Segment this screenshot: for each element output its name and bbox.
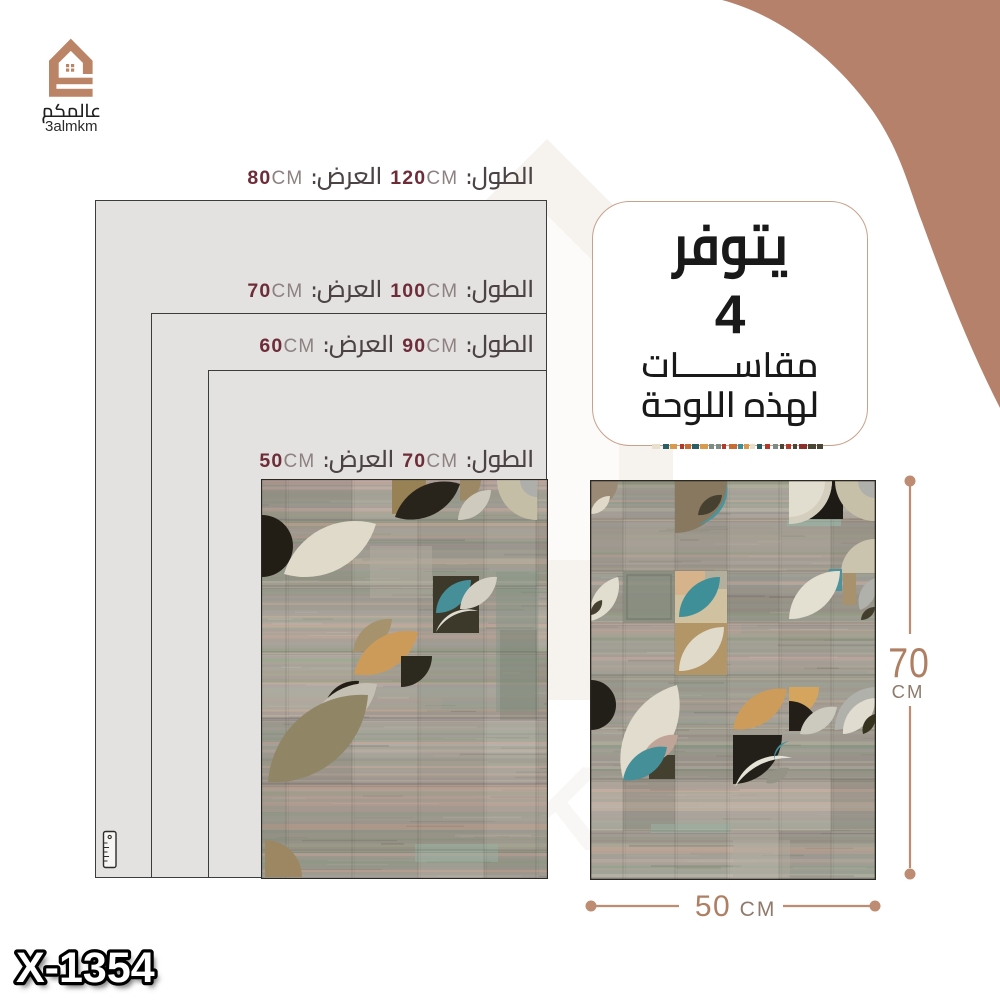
svg-text:80CM: 80CM <box>247 167 303 189</box>
svg-text:70CM: 70CM <box>402 450 458 472</box>
svg-text:70CM: 70CM <box>247 280 303 302</box>
svg-text:3almkm: 3almkm <box>45 118 98 135</box>
svg-text:90CM: 90CM <box>402 335 458 357</box>
svg-text:CM: CM <box>892 681 925 702</box>
svg-text:X-1354: X-1354 <box>16 944 155 992</box>
svg-text:100CM: 100CM <box>390 280 458 302</box>
svg-text:120CM: 120CM <box>390 167 458 189</box>
svg-text:70: 70 <box>888 640 929 686</box>
svg-text:4: 4 <box>715 283 746 345</box>
svg-text:CM: CM <box>740 898 777 921</box>
svg-text:50CM: 50CM <box>259 450 315 472</box>
svg-text:60CM: 60CM <box>259 335 315 357</box>
svg-text:50: 50 <box>695 890 731 923</box>
